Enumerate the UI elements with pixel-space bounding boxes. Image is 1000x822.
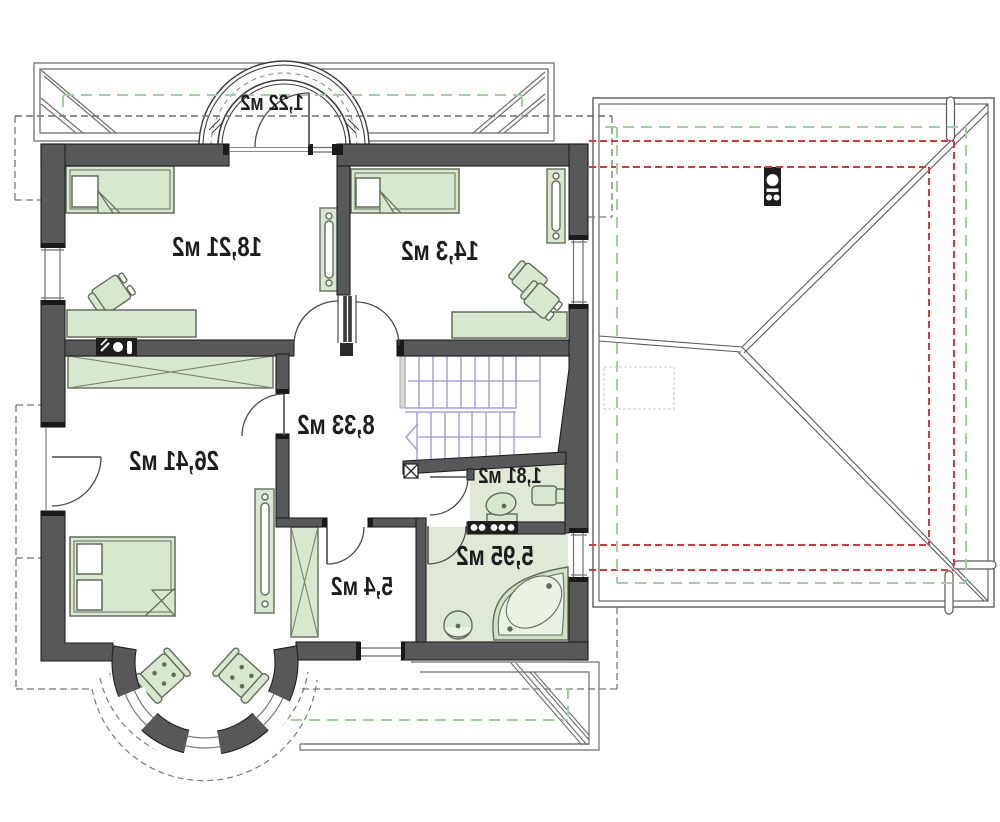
svg-text:1,22 м2: 1,22 м2	[240, 91, 303, 115]
svg-text:5,4 м2: 5,4 м2	[331, 572, 393, 602]
svg-text:1,81 м2: 1,81 м2	[478, 464, 541, 488]
svg-text:5,95 м2: 5,95 м2	[456, 541, 533, 572]
svg-text:8,33 м2: 8,33 м2	[297, 410, 374, 441]
svg-text:26,41 м2: 26,41 м2	[129, 446, 219, 477]
svg-text:14,3 м2: 14,3 м2	[401, 236, 478, 267]
svg-text:18,21 м2: 18,21 м2	[172, 232, 262, 263]
